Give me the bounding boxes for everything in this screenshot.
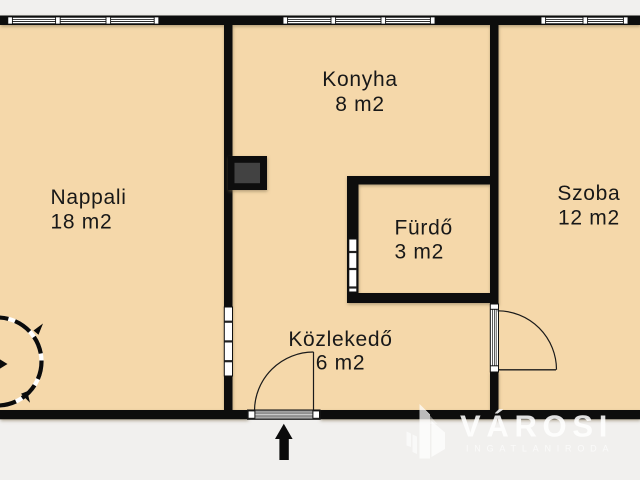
svg-text:6 m2: 6 m2	[316, 352, 366, 375]
svg-text:3 m2: 3 m2	[395, 240, 445, 263]
svg-text:Nappali: Nappali	[51, 186, 127, 209]
svg-text:18 m2: 18 m2	[51, 211, 113, 234]
svg-text:VÁROSI: VÁROSI	[460, 409, 613, 444]
svg-text:Közlekedő: Közlekedő	[288, 328, 392, 351]
svg-text:8 m2: 8 m2	[335, 93, 385, 116]
svg-text:Szoba: Szoba	[557, 182, 620, 205]
svg-text:12 m2: 12 m2	[558, 207, 620, 230]
svg-text:Konyha: Konyha	[322, 68, 397, 91]
svg-text:INGATLANIRODA: INGATLANIRODA	[466, 443, 614, 453]
svg-text:Fürdő: Fürdő	[395, 217, 453, 240]
